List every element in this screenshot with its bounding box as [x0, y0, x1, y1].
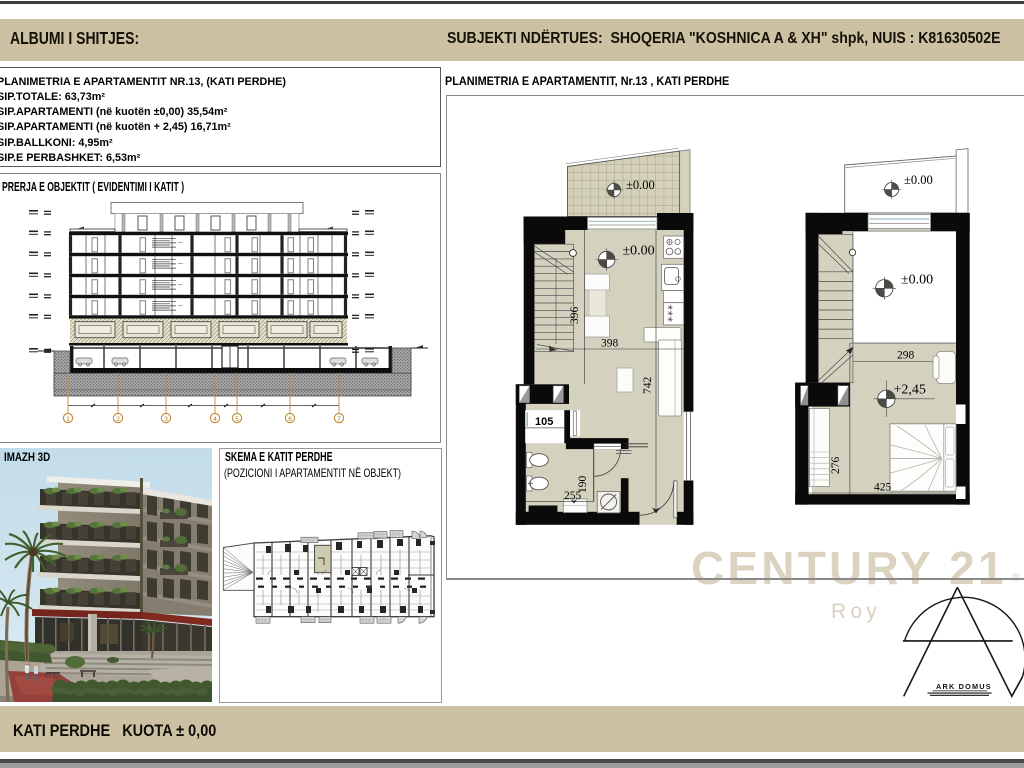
- svg-text:4: 4: [213, 416, 217, 423]
- svg-text:7: 7: [337, 416, 341, 423]
- svg-text:2: 2: [116, 416, 120, 423]
- svg-text:±0.00: ±0.00: [626, 178, 655, 192]
- svg-text:6: 6: [288, 416, 292, 423]
- svg-text:±0.00: ±0.00: [901, 273, 933, 288]
- svg-text:5: 5: [235, 416, 239, 423]
- svg-text:1: 1: [66, 416, 70, 423]
- svg-text:255: 255: [564, 490, 582, 502]
- svg-text:ARK DOMUS: ARK DOMUS: [936, 682, 992, 691]
- svg-text:276: 276: [830, 457, 842, 475]
- svg-text:105: 105: [535, 416, 553, 428]
- svg-text:±0.00: ±0.00: [623, 244, 655, 259]
- svg-text:298: 298: [897, 350, 915, 362]
- svg-text:398: 398: [601, 338, 619, 350]
- svg-text:✳: ✳: [667, 315, 674, 324]
- svg-text:±0.00: ±0.00: [904, 173, 933, 187]
- svg-text:3: 3: [164, 416, 168, 423]
- svg-text:+2,45: +2,45: [894, 383, 926, 398]
- svg-text:396: 396: [569, 307, 581, 325]
- svg-text:425: 425: [874, 482, 892, 494]
- svg-text:742: 742: [642, 377, 654, 395]
